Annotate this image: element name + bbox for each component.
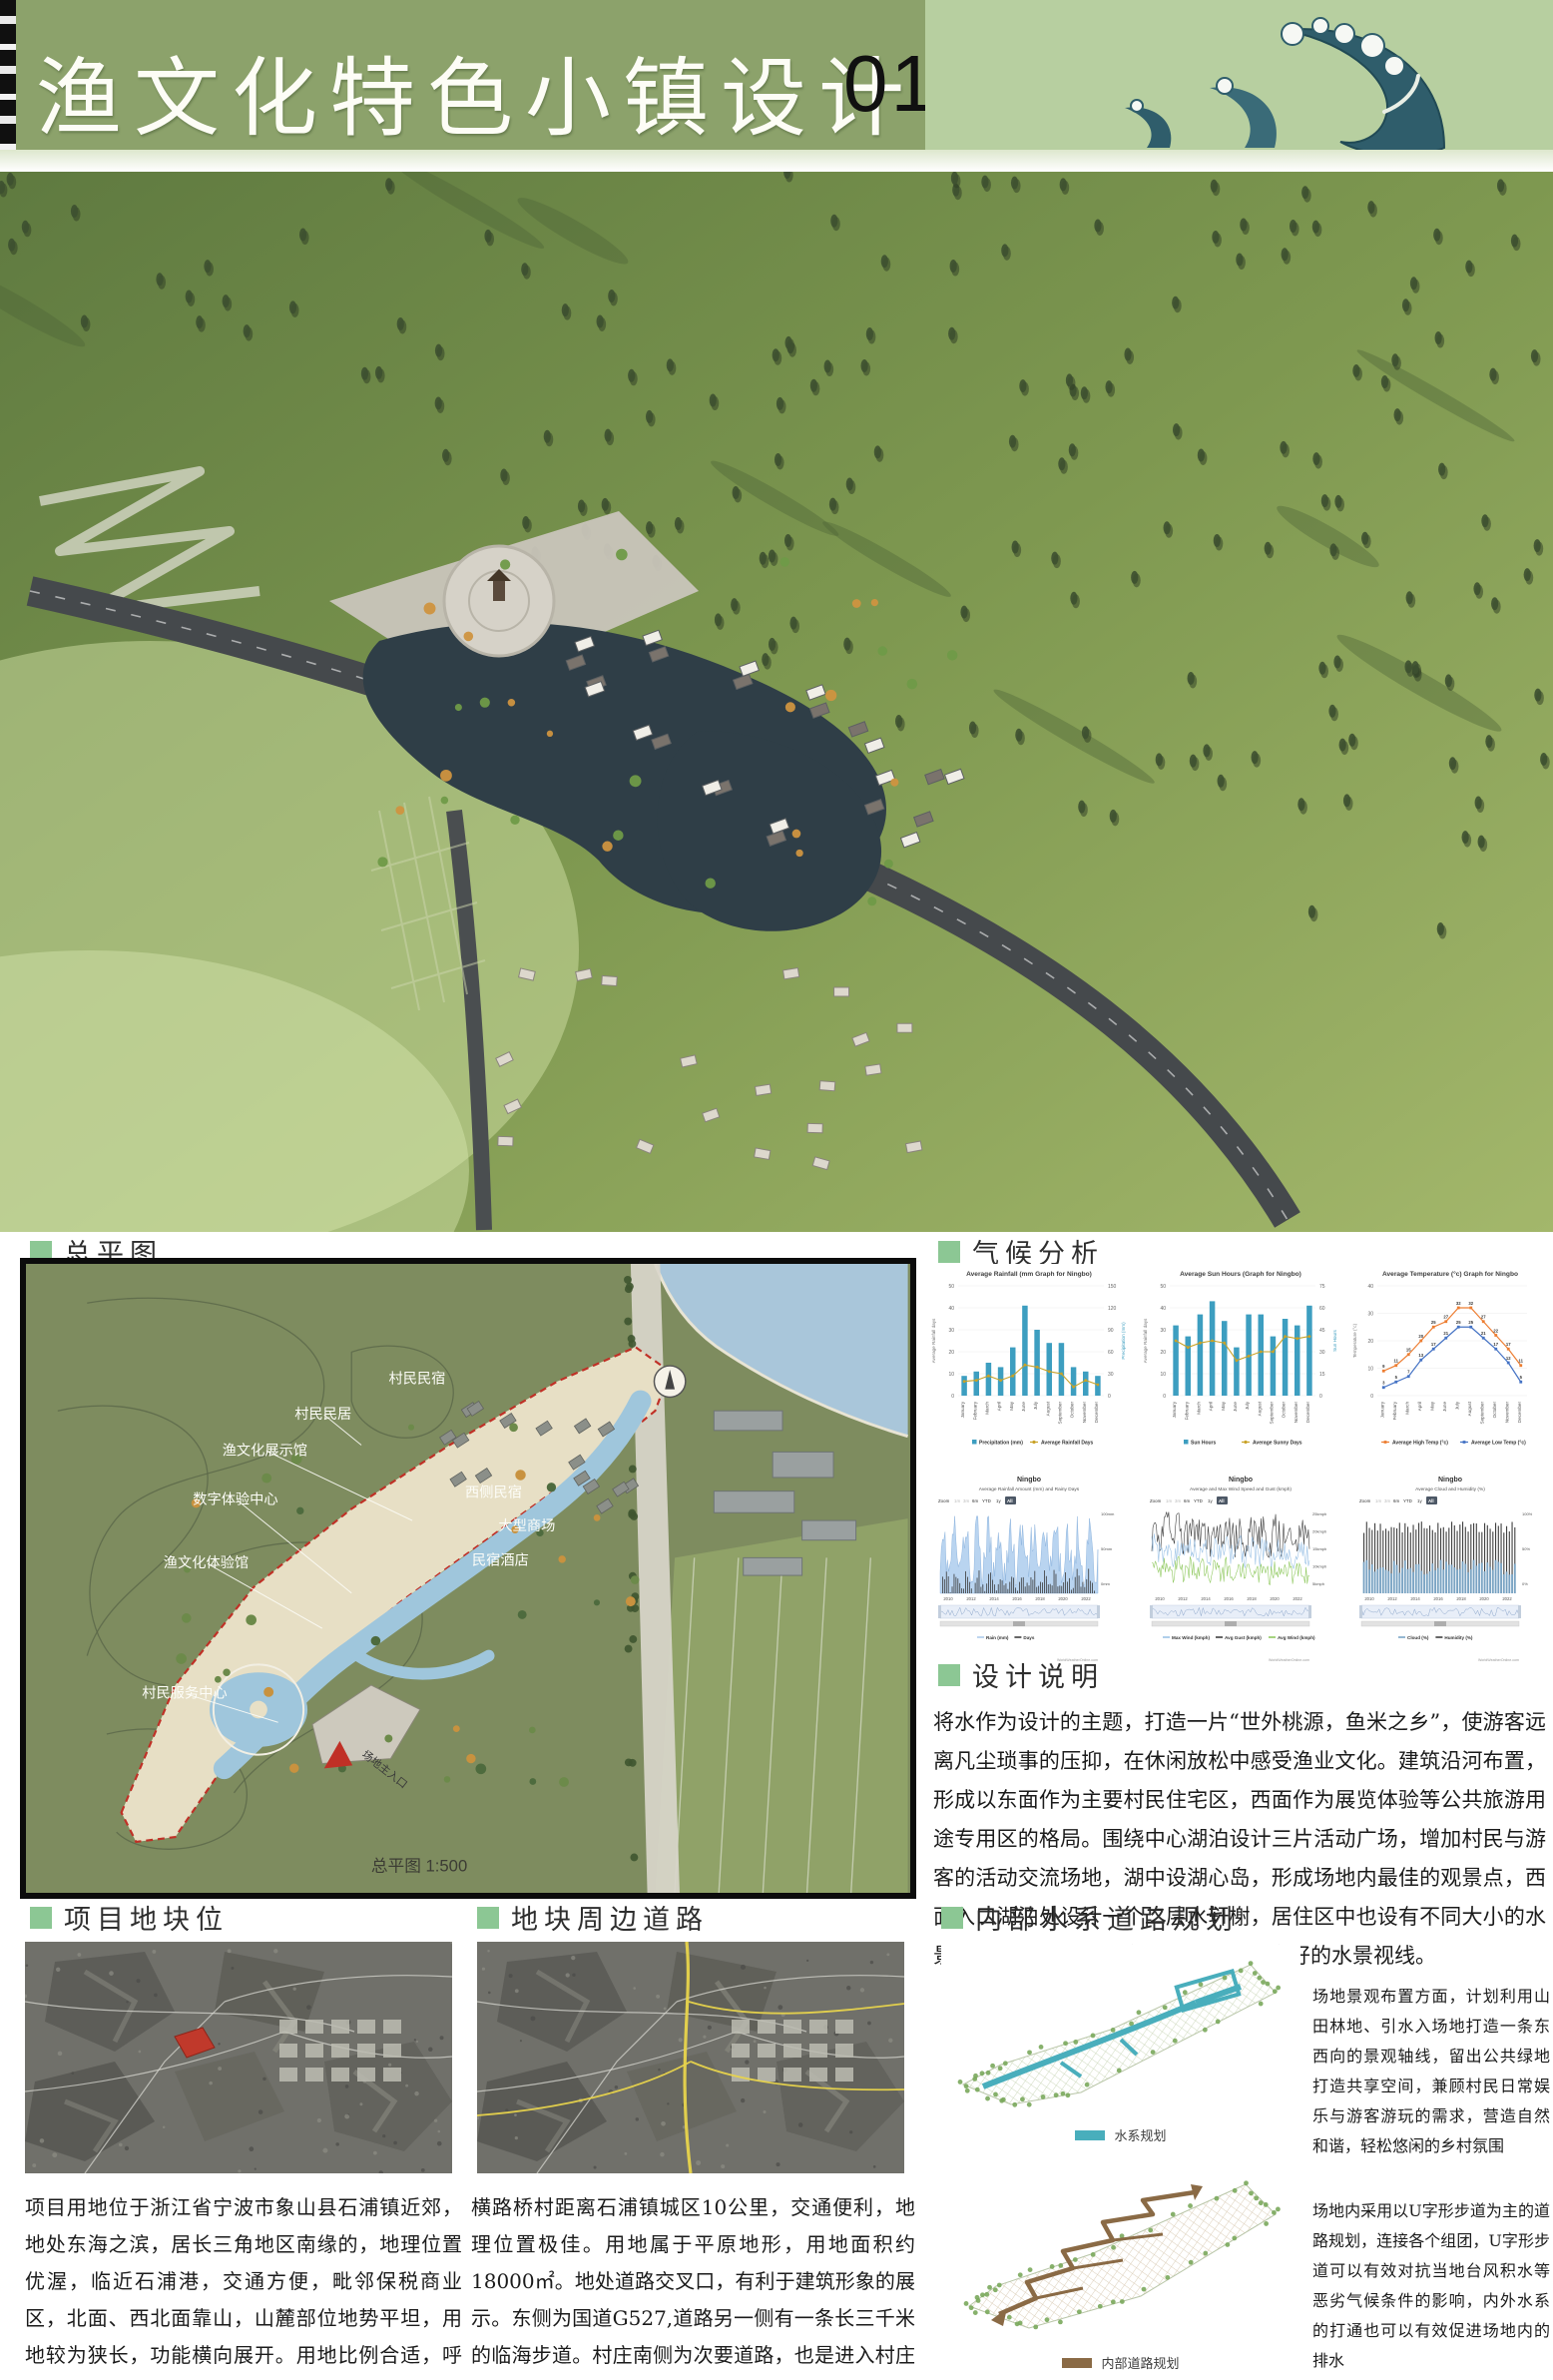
svg-text:40: 40 [1160, 1306, 1166, 1312]
svg-text:2014: 2014 [1201, 1596, 1211, 1601]
svg-text:YTD: YTD [982, 1498, 991, 1503]
svg-text:2018: 2018 [1035, 1596, 1045, 1601]
water-legend-label: 水系规划 [1114, 2125, 1166, 2144]
section-title: 设计说明 [972, 1655, 1104, 1694]
svg-text:Zoom: Zoom [938, 1498, 950, 1503]
svg-text:0: 0 [951, 1394, 954, 1400]
svg-text:2014: 2014 [1410, 1596, 1420, 1601]
location-map [25, 1942, 452, 2173]
svg-text:40: 40 [948, 1306, 954, 1312]
svg-text:June: June [1021, 1402, 1026, 1412]
svg-text:5: 5 [1395, 1375, 1398, 1380]
water-system-text: 场地景观布置方面，计划利用山田林地、引水入场地打造一条东西向的景观轴线，留出公共… [1312, 1982, 1550, 2161]
surrounding-roads-text: 横路桥村距离石浦镇城区10公里，交通便利，地理位置极佳。用地属于平原地形，用地面… [471, 2189, 915, 2380]
svg-text:50: 50 [1160, 1284, 1166, 1290]
svg-text:All: All [1219, 1498, 1225, 1503]
svg-text:1y: 1y [996, 1498, 1001, 1503]
svg-text:10: 10 [1160, 1372, 1166, 1378]
svg-text:2022: 2022 [1081, 1596, 1091, 1601]
svg-text:25: 25 [1456, 1320, 1461, 1325]
svg-text:Avg Wind (kmph): Avg Wind (kmph) [1278, 1635, 1315, 1640]
svg-text:Sun Hours: Sun Hours [1191, 1441, 1216, 1447]
svg-text:January: January [1379, 1401, 1384, 1418]
svg-text:Precipitation (mm): Precipitation (mm) [1121, 1322, 1126, 1360]
chart-wind-history: NingboAverage and Max Wind Speed and Gus… [1138, 1466, 1343, 1665]
svg-text:3m: 3m [963, 1498, 969, 1503]
svg-text:November: November [1504, 1402, 1509, 1424]
svg-text:Zoom: Zoom [1150, 1498, 1162, 1503]
svg-text:Average Rainfall (mm Graph for: Average Rainfall (mm Graph for Ningbo) [966, 1271, 1092, 1278]
svg-text:120: 120 [1108, 1306, 1117, 1312]
svg-text:11: 11 [1394, 1359, 1399, 1364]
svg-text:21: 21 [1481, 1331, 1486, 1336]
plan-scale-note: 总平图 1:500 [371, 1856, 467, 1875]
svg-text:Zoom: Zoom [1359, 1498, 1371, 1503]
svg-text:Max Wind (kmph): Max Wind (kmph) [1172, 1635, 1210, 1640]
chart-sun-hours: Average Sun Hours (Graph for Ningbo)0010… [1138, 1264, 1343, 1464]
svg-text:45: 45 [1319, 1328, 1325, 1334]
svg-text:Average and Max Wind Speed and: Average and Max Wind Speed and Gust (kmp… [1190, 1487, 1292, 1492]
svg-text:Ningbo: Ningbo [1438, 1477, 1462, 1484]
svg-text:February: February [1392, 1401, 1397, 1420]
svg-text:Days: Days [1023, 1635, 1034, 1640]
svg-text:1m: 1m [954, 1498, 960, 1503]
svg-text:6m: 6m [972, 1498, 978, 1503]
svg-text:25: 25 [1431, 1320, 1436, 1325]
chart-temperature: Average Temperature (°c) Graph for Ningb… [1347, 1264, 1553, 1464]
svg-text:March: March [1404, 1402, 1409, 1415]
svg-text:YTD: YTD [1194, 1498, 1203, 1503]
svg-text:0: 0 [1319, 1394, 1322, 1400]
svg-text:November: November [1082, 1402, 1087, 1424]
section-title: 内部水系道路规划 [975, 1898, 1239, 1937]
svg-text:2020: 2020 [1270, 1596, 1280, 1601]
svg-text:Avg Gust (kmph): Avg Gust (kmph) [1225, 1635, 1262, 1640]
svg-text:20: 20 [1418, 1334, 1423, 1339]
chart-rain-history: NingboAverage Rainfall Amount (mm) and R… [926, 1466, 1132, 1665]
svg-text:May: May [1429, 1401, 1434, 1410]
svg-text:YTD: YTD [1403, 1498, 1412, 1503]
section-bullet [30, 1907, 52, 1929]
svg-text:April: April [1417, 1402, 1422, 1411]
svg-text:November: November [1294, 1402, 1298, 1424]
svg-text:0mm: 0mm [1101, 1581, 1111, 1586]
svg-text:15kmph: 15kmph [1312, 1546, 1326, 1551]
road-legend-label: 内部道路规划 [1101, 2353, 1179, 2372]
svg-text:2010: 2010 [1364, 1596, 1374, 1601]
svg-text:40: 40 [1367, 1284, 1373, 1290]
svg-text:October: October [1070, 1402, 1075, 1419]
svg-text:20: 20 [1160, 1350, 1166, 1356]
roads-map [477, 1942, 904, 2173]
section-site-location-header: 项目地块位 [30, 1898, 229, 1937]
svg-text:30: 30 [1367, 1311, 1373, 1317]
svg-text:July: July [1245, 1401, 1250, 1410]
svg-text:50mm: 50mm [1101, 1546, 1113, 1551]
svg-text:3m: 3m [1384, 1498, 1390, 1503]
svg-text:Humidity (%): Humidity (%) [1444, 1635, 1473, 1640]
svg-text:January: January [1172, 1401, 1177, 1418]
svg-text:Rain (mm): Rain (mm) [986, 1635, 1009, 1640]
svg-text:December: December [1517, 1402, 1522, 1424]
svg-text:15: 15 [1319, 1372, 1325, 1378]
svg-text:February: February [972, 1401, 977, 1420]
svg-text:30: 30 [1160, 1328, 1166, 1334]
svg-text:30: 30 [1108, 1372, 1114, 1378]
svg-text:April: April [997, 1402, 1002, 1411]
svg-text:September: September [1269, 1402, 1274, 1425]
road-system-text: 场地内采用以U字形步道为主的道路规划，连接各个组团，U字形步道可以有效对抗当地台… [1312, 2196, 1550, 2376]
svg-text:2014: 2014 [989, 1596, 999, 1601]
svg-text:Average Rainfall Days: Average Rainfall Days [1041, 1441, 1094, 1447]
svg-text:July: July [1033, 1401, 1038, 1410]
svg-text:22: 22 [1493, 1328, 1498, 1333]
svg-text:December: December [1305, 1402, 1310, 1424]
svg-text:September: September [1057, 1402, 1062, 1425]
svg-text:June: June [1442, 1402, 1447, 1412]
svg-text:1y: 1y [1208, 1498, 1213, 1503]
svg-text:13: 13 [1418, 1353, 1423, 1358]
svg-text:Sun Hours: Sun Hours [1332, 1329, 1337, 1351]
svg-text:Average Rainfall days: Average Rainfall days [931, 1318, 936, 1363]
svg-text:10: 10 [1367, 1366, 1373, 1372]
svg-text:September: September [1479, 1402, 1484, 1425]
svg-text:March: March [984, 1402, 989, 1415]
master-plan-map: 村民民宿村民民居渔文化展示馆数字体验中心渔文化体验馆村民服务中心西侧民宿大型商场… [20, 1258, 916, 1899]
svg-text:2010: 2010 [1155, 1596, 1165, 1601]
svg-text:6m: 6m [1184, 1498, 1190, 1503]
svg-text:August: August [1045, 1401, 1050, 1416]
svg-text:60: 60 [1108, 1350, 1114, 1356]
svg-text:2022: 2022 [1502, 1596, 1512, 1601]
aerial-rendering [0, 172, 1553, 1232]
svg-text:60: 60 [1319, 1306, 1325, 1312]
section-bullet [477, 1907, 499, 1929]
svg-text:2012: 2012 [966, 1596, 976, 1601]
svg-text:May: May [1009, 1401, 1014, 1410]
section-title: 项目地块位 [64, 1898, 229, 1937]
svg-text:2016: 2016 [1433, 1596, 1443, 1601]
svg-text:2018: 2018 [1247, 1596, 1257, 1601]
svg-text:150: 150 [1108, 1284, 1117, 1290]
plan-label: 村民民居 [294, 1406, 351, 1423]
water-system-diagram: 水系规划 [941, 1945, 1300, 2144]
chart-rainfall: Average Rainfall (mm Graph for Ningbo)00… [926, 1264, 1132, 1464]
svg-text:30: 30 [948, 1328, 954, 1334]
svg-text:Average High Temp (°c): Average High Temp (°c) [1392, 1441, 1448, 1447]
svg-text:15: 15 [1406, 1348, 1411, 1353]
svg-text:August: August [1257, 1401, 1262, 1416]
plan-label: 数字体验中心 [193, 1490, 277, 1507]
svg-text:50: 50 [948, 1284, 954, 1290]
svg-text:2010: 2010 [943, 1596, 953, 1601]
svg-text:25kmph: 25kmph [1312, 1511, 1326, 1516]
svg-text:100mm: 100mm [1101, 1511, 1115, 1516]
plan-label: 渔文化展示馆 [223, 1442, 307, 1459]
svg-text:Precipitation (mm): Precipitation (mm) [979, 1441, 1023, 1447]
svg-text:20: 20 [948, 1350, 954, 1356]
svg-text:5: 5 [1520, 1375, 1523, 1380]
plan-label: 渔文化体验馆 [164, 1554, 249, 1571]
svg-text:1y: 1y [1417, 1498, 1422, 1503]
svg-text:25: 25 [1468, 1320, 1473, 1325]
section-bullet [941, 1907, 963, 1929]
svg-text:Average Cloud and Humidity (%): Average Cloud and Humidity (%) [1415, 1487, 1485, 1492]
svg-text:21: 21 [1443, 1331, 1448, 1336]
svg-text:1m: 1m [1166, 1498, 1172, 1503]
svg-text:Temperature (°c): Temperature (°c) [1352, 1323, 1357, 1358]
svg-text:0%: 0% [1522, 1581, 1528, 1586]
section-bullet [938, 1241, 960, 1263]
svg-text:2020: 2020 [1479, 1596, 1489, 1601]
section-design-notes-header: 设计说明 [938, 1655, 1104, 1694]
chart-cloud-humidity: NingboAverage Cloud and Humidity (%)Zoom… [1347, 1466, 1553, 1665]
svg-text:Average Sun Hours (Graph for N: Average Sun Hours (Graph for Ningbo) [1180, 1271, 1301, 1278]
section-title: 地块周边道路 [511, 1898, 709, 1937]
section-internal-planning-header: 内部水系道路规划 [941, 1898, 1239, 1937]
poster-board: 渔文化特色小镇设计 01 [0, 0, 1553, 2380]
svg-text:10kmph: 10kmph [1312, 1564, 1326, 1569]
svg-text:July: July [1454, 1401, 1459, 1410]
svg-text:0: 0 [1370, 1394, 1373, 1400]
svg-text:2020: 2020 [1058, 1596, 1068, 1601]
svg-text:90: 90 [1108, 1328, 1114, 1334]
svg-text:50%: 50% [1522, 1546, 1530, 1551]
svg-text:WorldWeatherOnline.com: WorldWeatherOnline.com [1478, 1658, 1519, 1662]
svg-text:17: 17 [1493, 1342, 1498, 1347]
svg-text:0: 0 [1108, 1394, 1111, 1400]
svg-text:Average Rainfall Amount (mm) a: Average Rainfall Amount (mm) and Rainy D… [979, 1487, 1080, 1492]
svg-text:3m: 3m [1175, 1498, 1181, 1503]
svg-text:Ningbo: Ningbo [1229, 1477, 1253, 1484]
road-legend-swatch [1062, 2358, 1092, 2368]
svg-text:17: 17 [1431, 1342, 1436, 1347]
wave-illustration-panel [925, 0, 1553, 150]
svg-text:2016: 2016 [1012, 1596, 1022, 1601]
svg-text:32: 32 [1468, 1301, 1473, 1306]
section-bullet [938, 1664, 960, 1686]
site-location-text: 项目用地位于浙江省宁波市象山县石浦镇近郊，地处东海之滨，居长三角地区南缘的，地理… [25, 2189, 462, 2380]
svg-text:Average Rainfall days: Average Rainfall days [1143, 1318, 1148, 1363]
svg-text:All: All [1428, 1498, 1434, 1503]
svg-text:2012: 2012 [1387, 1596, 1397, 1601]
svg-text:June: June [1233, 1402, 1238, 1412]
svg-text:20: 20 [1367, 1339, 1373, 1345]
svg-text:February: February [1184, 1401, 1189, 1420]
water-legend-swatch [1075, 2130, 1105, 2140]
svg-text:January: January [960, 1401, 965, 1418]
svg-text:1m: 1m [1375, 1498, 1381, 1503]
svg-text:August: August [1467, 1401, 1472, 1416]
svg-text:Average Low Temp (°c): Average Low Temp (°c) [1471, 1441, 1526, 1447]
svg-text:7: 7 [1407, 1370, 1410, 1375]
svg-text:100%: 100% [1522, 1511, 1533, 1516]
svg-text:December: December [1094, 1402, 1099, 1424]
svg-text:32: 32 [1456, 1301, 1461, 1306]
page-title: 渔文化特色小镇设计 [36, 28, 854, 153]
seal-strip [0, 0, 16, 150]
svg-text:27: 27 [1443, 1315, 1448, 1320]
svg-text:Average Temperature (°c) Graph: Average Temperature (°c) Graph for Ningb… [1382, 1270, 1518, 1278]
svg-text:Cloud (%): Cloud (%) [1407, 1635, 1429, 1640]
svg-text:March: March [1196, 1402, 1201, 1415]
svg-text:All: All [1007, 1498, 1013, 1503]
road-system-diagram: 内部道路规划 [941, 2156, 1300, 2374]
svg-text:17: 17 [1506, 1342, 1511, 1347]
svg-text:October: October [1282, 1402, 1287, 1419]
svg-text:20kmph: 20kmph [1312, 1529, 1326, 1534]
header-divider [0, 150, 1553, 172]
svg-text:May: May [1221, 1401, 1226, 1410]
svg-text:2022: 2022 [1293, 1596, 1302, 1601]
svg-text:April: April [1209, 1402, 1214, 1411]
wave-icon [925, 0, 1553, 150]
svg-text:3: 3 [1382, 1381, 1385, 1386]
svg-text:30: 30 [1319, 1350, 1325, 1356]
header-band: 渔文化特色小镇设计 01 [0, 0, 1553, 150]
plan-label: 村民服务中心 [142, 1685, 227, 1702]
svg-text:11: 11 [1519, 1359, 1524, 1364]
svg-text:12: 12 [1506, 1356, 1511, 1361]
plan-label: 大型商场 [498, 1517, 555, 1534]
svg-text:10: 10 [948, 1372, 954, 1378]
plan-label: 民宿酒店 [472, 1551, 529, 1568]
section-surrounding-roads-header: 地块周边道路 [477, 1898, 709, 1937]
svg-text:Average Sunny Days: Average Sunny Days [1253, 1441, 1302, 1447]
svg-text:2012: 2012 [1178, 1596, 1188, 1601]
svg-text:6m: 6m [1393, 1498, 1399, 1503]
svg-text:October: October [1492, 1402, 1497, 1419]
svg-text:2016: 2016 [1224, 1596, 1234, 1601]
page-number: 01 [843, 38, 938, 130]
svg-text:5kmph: 5kmph [1312, 1581, 1324, 1586]
svg-text:Ningbo: Ningbo [1017, 1477, 1041, 1484]
plan-label: 西侧民宿 [465, 1485, 522, 1501]
plan-label: 村民民宿 [389, 1371, 446, 1388]
svg-text:2018: 2018 [1456, 1596, 1466, 1601]
svg-text:27: 27 [1481, 1315, 1486, 1320]
svg-text:75: 75 [1319, 1284, 1325, 1290]
svg-text:0: 0 [1163, 1394, 1166, 1400]
svg-text:WorldWeatherOnline.com: WorldWeatherOnline.com [1269, 1658, 1309, 1662]
